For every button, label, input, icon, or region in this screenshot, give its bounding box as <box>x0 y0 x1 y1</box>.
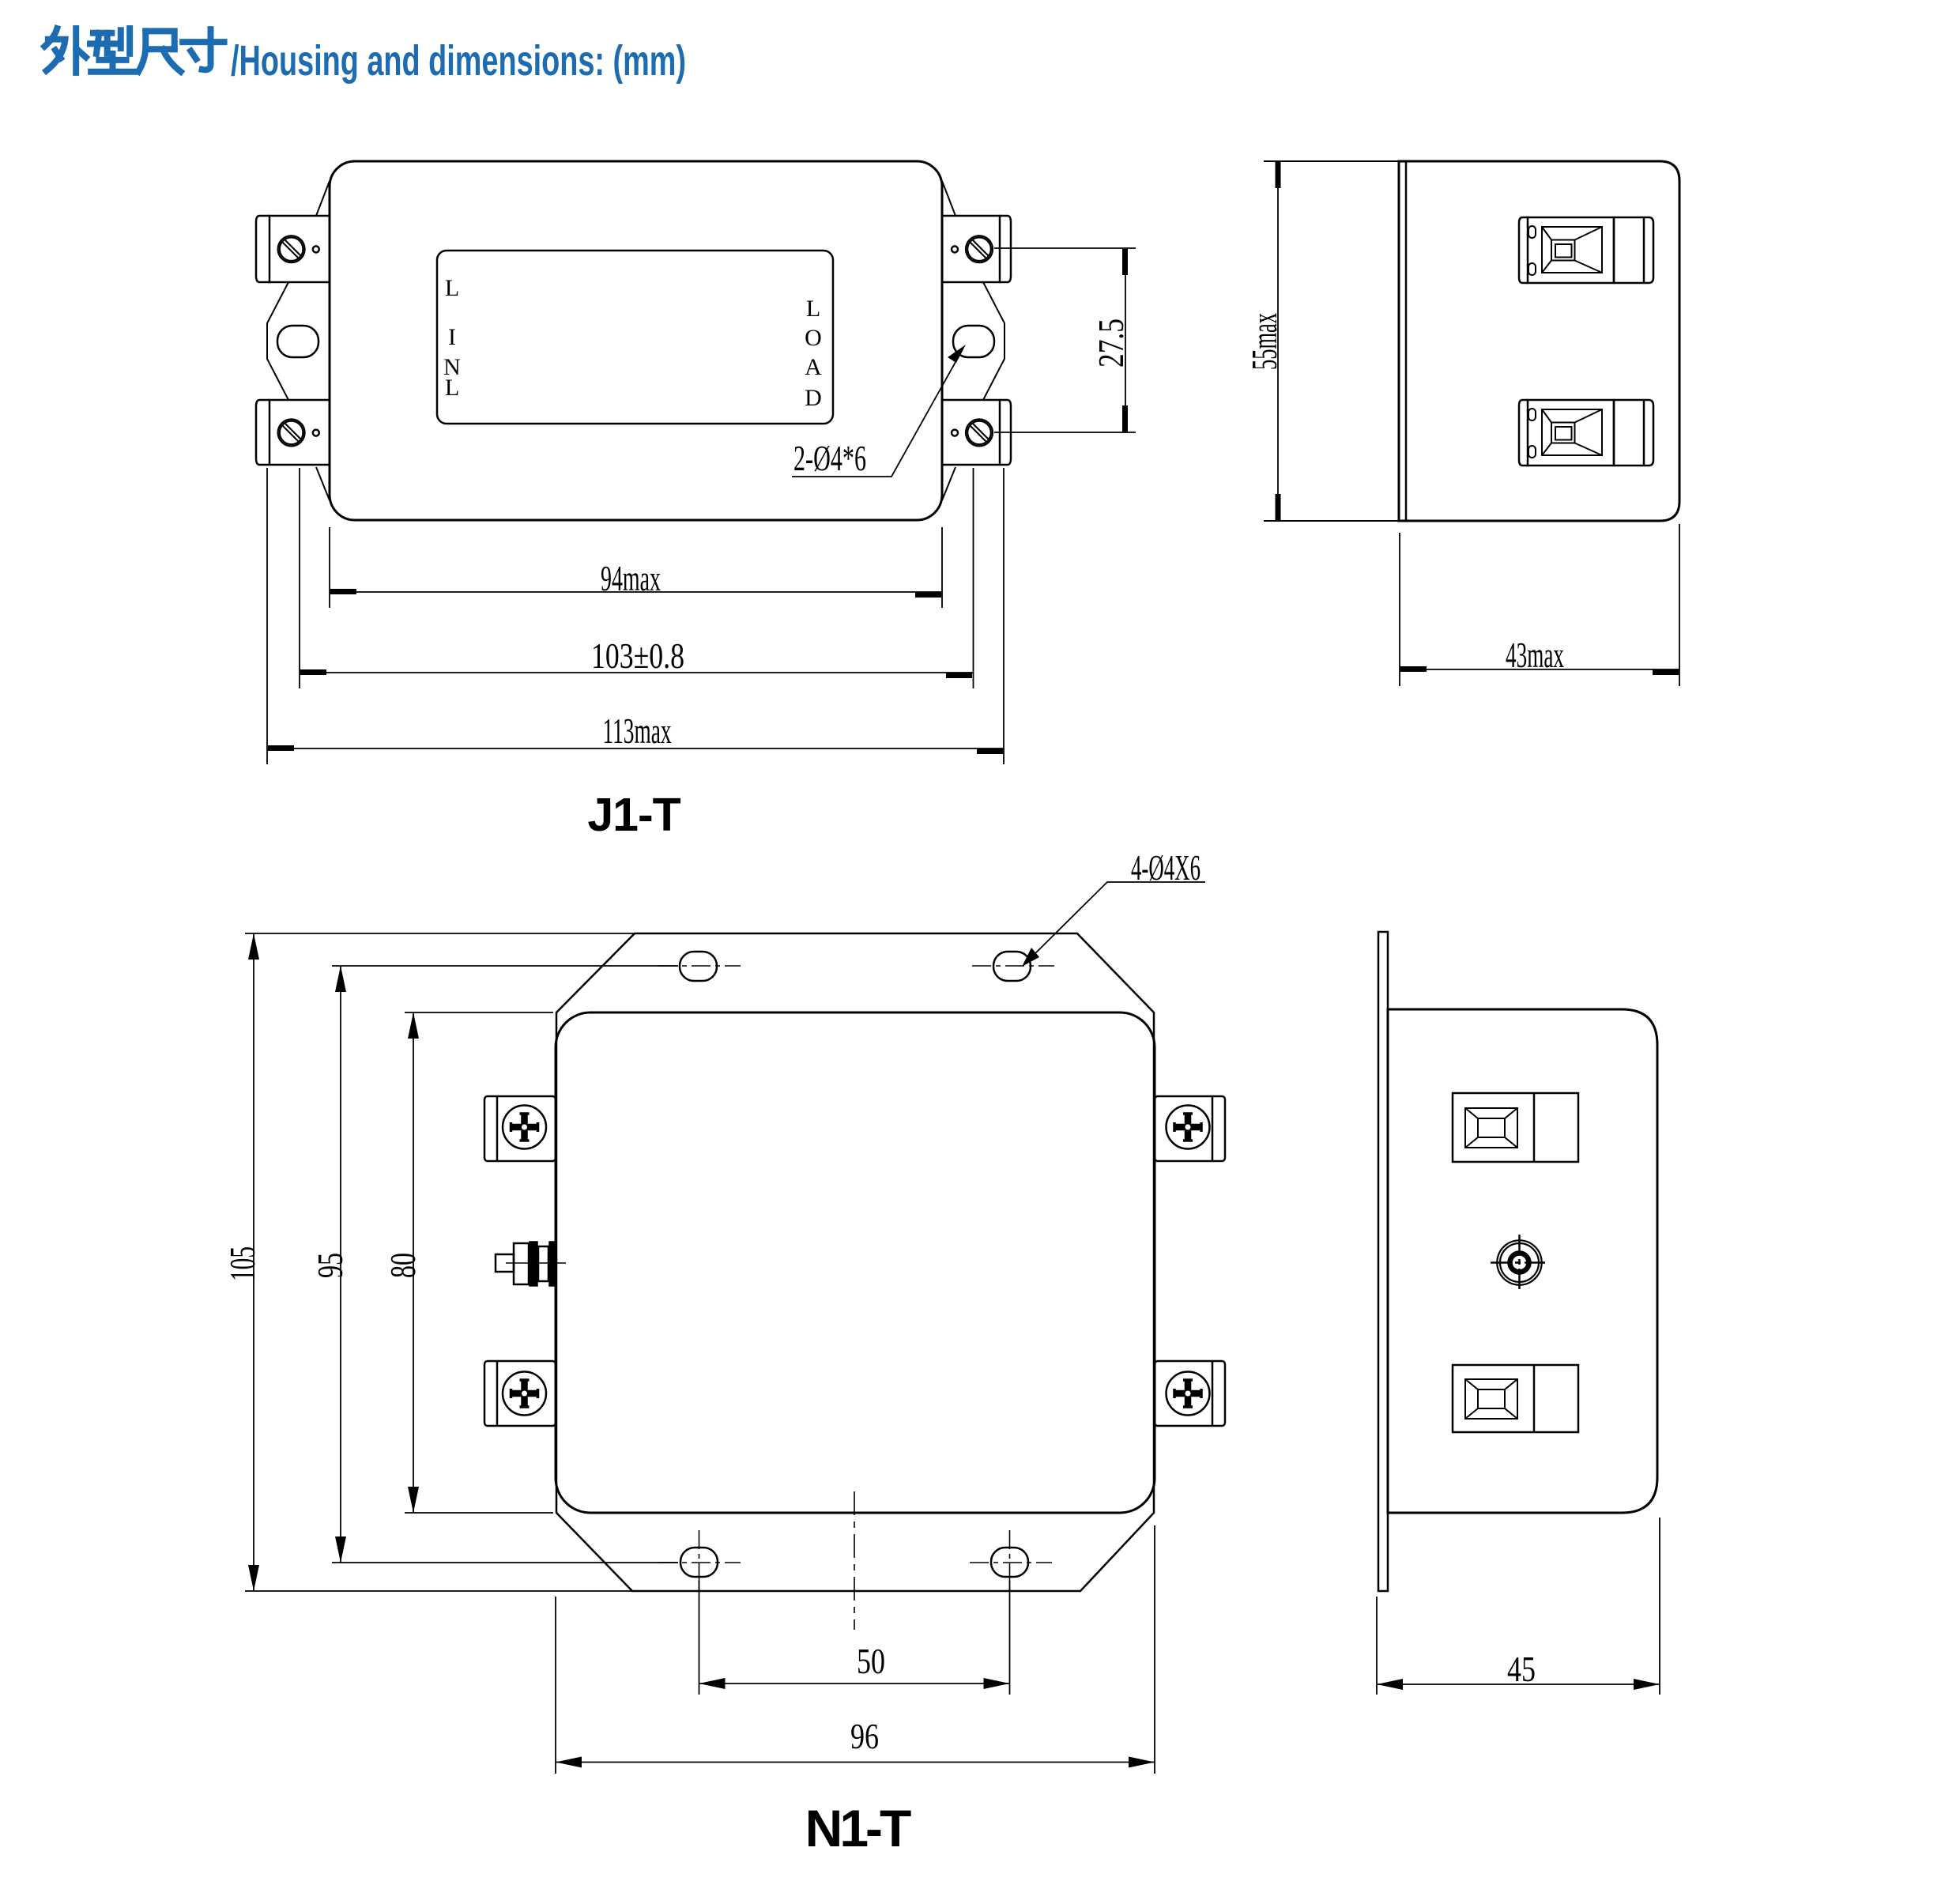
svg-text:N1-T: N1-T <box>805 1799 911 1857</box>
svg-text:O: O <box>805 325 822 351</box>
svg-text:/Housing and dimensions: (mm): /Housing and dimensions: (mm) <box>231 37 686 85</box>
svg-text:L: L <box>806 296 820 322</box>
svg-text:I: I <box>448 324 456 350</box>
svg-text:27.5: 27.5 <box>1091 319 1131 368</box>
svg-text:A: A <box>805 354 822 380</box>
svg-text:95: 95 <box>310 1253 350 1278</box>
svg-text:55max: 55max <box>1244 313 1284 370</box>
svg-text:94max: 94max <box>601 558 661 598</box>
svg-text:L: L <box>445 275 459 301</box>
svg-text:D: D <box>805 385 822 411</box>
svg-text:J1-T: J1-T <box>587 789 680 841</box>
svg-text:80: 80 <box>383 1253 423 1278</box>
svg-text:43max: 43max <box>1506 635 1564 675</box>
svg-text:L: L <box>445 375 459 401</box>
svg-text:105: 105 <box>222 1246 262 1281</box>
svg-text:96: 96 <box>850 1716 879 1756</box>
svg-text:2-Ø4*6: 2-Ø4*6 <box>793 438 866 478</box>
svg-text:103±0.8: 103±0.8 <box>591 635 684 676</box>
svg-text:45: 45 <box>1507 1649 1536 1689</box>
svg-text:50: 50 <box>857 1641 885 1681</box>
svg-text:113max: 113max <box>603 711 672 751</box>
